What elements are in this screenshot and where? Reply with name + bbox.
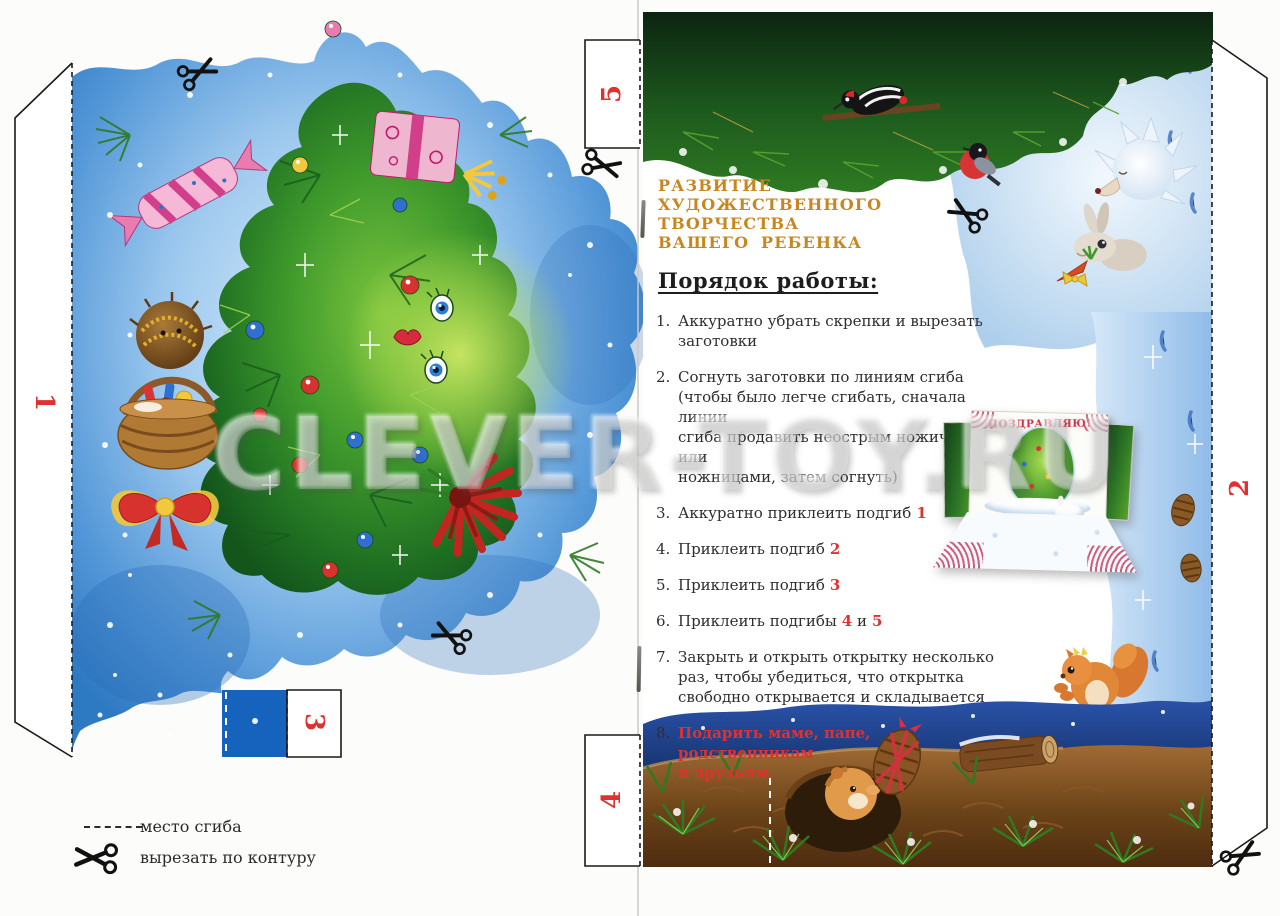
tab-number-1: 1 [29,393,59,411]
instruction-item: 8.Подарить маме, папе, родственникам и д… [656,723,1006,783]
instruction-item: 1.Аккуратно убрать скрепки и вырезать за… [656,311,1006,351]
instruction-item: 6.Приклеить подгибы4 и5 [656,611,1006,631]
instruction-text: Аккуратно убрать скрепки и вырезать заго… [678,311,1006,351]
instruction-text: Закрыть и открыть открытку несколько раз… [678,647,994,707]
legend-scissors-icon [76,843,117,873]
instruction-text: Приклеить подгиб3 [678,575,840,595]
series-heading: РАЗВИТИЕ ХУДОЖЕСТВЕННОГО ТВОРЧЕСТВА ВАШЕ… [658,176,928,252]
instruction-number: 2. [656,367,678,487]
fold-line-sample [84,826,142,828]
instruction-number: 1. [656,311,678,351]
instruction-number: 4. [656,539,678,559]
instruction-number: 6. [656,611,678,631]
assembled-card-photo: ПОЗДРАВЛЯЮ! [931,407,1143,574]
tab-number-5: 5 [597,85,627,103]
tab-number-3: 3 [299,713,329,731]
heading-line: ТВОРЧЕСТВА [658,214,928,233]
instructions-title: Порядок работы: [658,268,878,293]
instruction-number: 8. [656,723,678,783]
lace-corner [933,541,984,568]
instruction-text: Подарить маме, папе, родственникам и дру… [678,723,1006,783]
instruction-number: 5. [656,575,678,595]
legend-cut-label: вырезать по контуру [140,848,316,867]
staple [637,646,642,692]
tab-number-4: 4 [597,791,627,809]
card-floor-panel [933,511,1138,572]
legend-fold-label: место сгиба [140,817,242,836]
tab-number-2: 2 [1225,479,1255,497]
lace-corner [1087,545,1138,572]
christmas-tree-cutout-illustration [70,15,660,760]
craft-sheet-scan: { "watermark": "CLEVER-TOY.RU", "header"… [0,0,1280,916]
instruction-item: 7.Закрыть и открыть открытку несколько р… [656,647,1006,707]
instruction-number: 3. [656,503,678,523]
instruction-item: 5.Приклеить подгиб3 [656,575,1006,595]
heading-line: РАЗВИТИЕ [658,176,928,195]
heading-line: ВАШЕГО РЕБЕНКА [658,233,928,252]
scissors-icon [1219,837,1261,876]
instruction-text: Аккуратно приклеить подгиб1 [678,503,927,523]
glue-tab-2 [1212,40,1267,866]
instruction-text: Приклеить подгибы4 и5 [678,611,882,631]
heading-line: ХУДОЖЕСТВЕННОГО [658,195,928,214]
tree-glow [345,230,575,480]
instruction-number: 7. [656,647,678,707]
instruction-text: Приклеить подгиб2 [678,539,840,559]
